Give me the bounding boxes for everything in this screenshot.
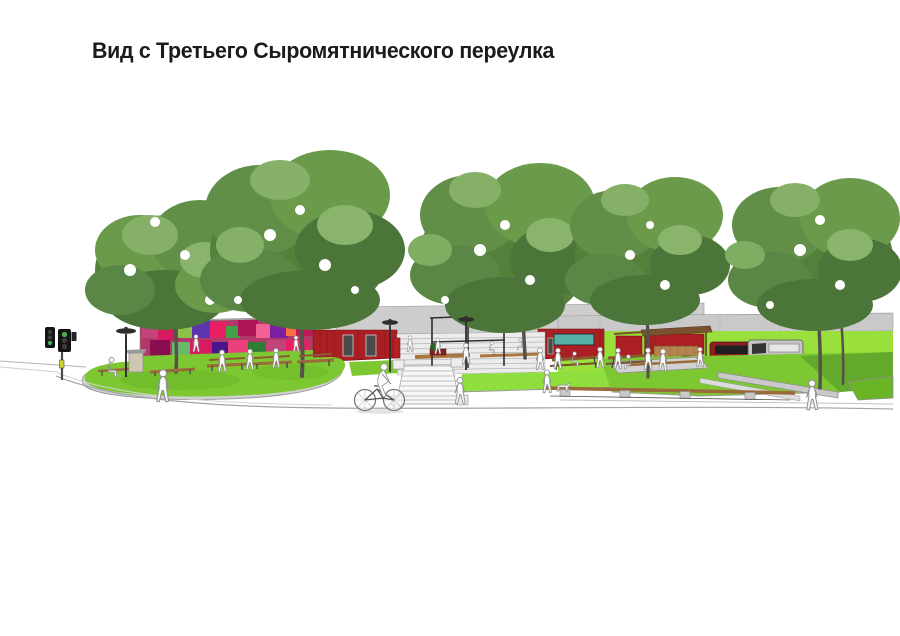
traffic-light (45, 327, 77, 380)
pavilion-door (343, 335, 353, 356)
rendering-view (0, 0, 900, 636)
presentation-slide: Вид с Третьего Сыромятнического переулка (0, 0, 900, 636)
pavilion-door (366, 335, 376, 356)
red-pavilion-center (538, 329, 604, 359)
info-stand (126, 349, 146, 372)
red-banner (393, 338, 400, 358)
pavilion-window (554, 334, 594, 345)
